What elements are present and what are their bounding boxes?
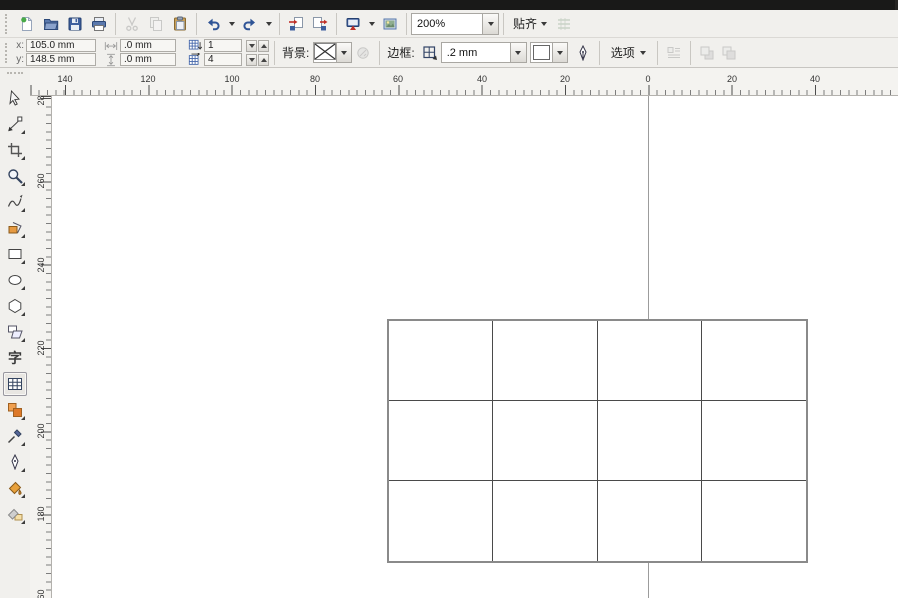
- toolbar-separator: [336, 13, 337, 35]
- toolbox-items: 字: [3, 86, 27, 528]
- no-fill-swatch: [314, 43, 336, 60]
- save-button[interactable]: [63, 12, 87, 36]
- print-icon: [91, 16, 107, 32]
- import-button[interactable]: [284, 12, 308, 36]
- cut-icon: [124, 16, 140, 32]
- welcome-screen-button[interactable]: [378, 12, 402, 36]
- rectangle-tool[interactable]: [3, 242, 27, 266]
- table-cell[interactable]: [389, 321, 493, 401]
- vruler-number: 260: [36, 171, 46, 191]
- text-tool-glyph: 字: [8, 351, 22, 365]
- smart-fill-tool[interactable]: [3, 216, 27, 240]
- table-cell[interactable]: [389, 481, 493, 561]
- border-width-field[interactable]: [442, 43, 510, 62]
- ellipse-tool[interactable]: [3, 268, 27, 292]
- shape-tool[interactable]: [3, 112, 27, 136]
- toolbar-separator: [196, 13, 197, 35]
- x-position-field[interactable]: [26, 39, 96, 52]
- columns-spin-down[interactable]: [246, 54, 257, 66]
- table-tool-icon: [7, 376, 23, 392]
- table-cell[interactable]: [493, 401, 597, 481]
- export-icon: [312, 16, 328, 32]
- y-position-label: y:: [15, 54, 24, 65]
- snap-settings-button[interactable]: [552, 12, 576, 36]
- fill-tool[interactable]: [3, 476, 27, 500]
- toolbar-separator: [279, 13, 280, 35]
- hruler-number: 20: [727, 74, 737, 84]
- export-button[interactable]: [308, 12, 332, 36]
- toolbox: 字: [0, 68, 30, 598]
- pick-tool[interactable]: [3, 86, 27, 110]
- import-icon: [288, 16, 304, 32]
- vruler-number: 200: [36, 421, 46, 441]
- flyout-indicator: [21, 260, 25, 264]
- drawing-canvas[interactable]: [52, 96, 898, 598]
- drawn-table[interactable]: [387, 319, 808, 563]
- table-columns-icon: [188, 53, 202, 67]
- horizontal-ruler-major-ticks: [30, 85, 898, 95]
- paste-icon: [172, 16, 188, 32]
- flyout-indicator: [21, 156, 25, 160]
- print-button[interactable]: [87, 12, 111, 36]
- vruler-number: 160: [36, 587, 46, 598]
- pick-tool-icon: [7, 90, 23, 106]
- text-tool[interactable]: 字: [3, 346, 27, 370]
- flyout-indicator: [21, 286, 25, 290]
- separator: [690, 41, 691, 65]
- vertical-ruler[interactable]: 280260240220200180160: [30, 96, 52, 598]
- border-color-swatch: [533, 45, 550, 60]
- to-back-button[interactable]: [718, 42, 740, 64]
- hruler-number: 40: [810, 74, 820, 84]
- width-icon: [104, 39, 118, 53]
- flyout-indicator: [21, 416, 25, 420]
- flyout-indicator: [21, 468, 25, 472]
- open-folder-icon: [43, 16, 59, 32]
- edit-fill-button[interactable]: [352, 42, 374, 64]
- border-select-icon: [422, 45, 438, 61]
- vruler-number: 220: [36, 338, 46, 358]
- rows-spin-down[interactable]: [246, 40, 257, 52]
- to-front-button[interactable]: [696, 42, 718, 64]
- options-dropdown[interactable]: 选项: [605, 42, 652, 64]
- table-cell[interactable]: [598, 481, 702, 561]
- object-size-group: [104, 39, 176, 66]
- border-label: 边框:: [387, 44, 414, 61]
- hruler-number: 140: [57, 74, 72, 84]
- wrap-text-button[interactable]: [663, 42, 685, 64]
- table-cell[interactable]: [598, 321, 702, 401]
- snap-settings-icon: [556, 16, 572, 32]
- polygon-tool[interactable]: [3, 294, 27, 318]
- x-position-label: x:: [15, 40, 24, 51]
- flyout-indicator: [21, 234, 25, 238]
- table-rows-icon: [188, 39, 202, 53]
- zoom-level-combo[interactable]: [411, 13, 499, 35]
- undo-button-caret[interactable]: [225, 13, 238, 35]
- zoom-tool[interactable]: [3, 164, 27, 188]
- edit-fill-icon: [355, 45, 371, 61]
- cut-button[interactable]: [120, 12, 144, 36]
- hruler-number: 40: [477, 74, 487, 84]
- flyout-indicator: [21, 312, 25, 316]
- options-label: 选项: [611, 44, 635, 61]
- flyout-indicator: [21, 494, 25, 498]
- table-cell[interactable]: [702, 321, 806, 401]
- snap-to-label: 贴齐: [513, 15, 537, 32]
- blend-tool[interactable]: [3, 398, 27, 422]
- outline-pen-tool[interactable]: [3, 450, 27, 474]
- open-button[interactable]: [39, 12, 63, 36]
- zoom-level-field[interactable]: [412, 14, 482, 34]
- window-title-strip: [0, 0, 898, 10]
- flyout-indicator: [21, 208, 25, 212]
- zoom-level-dropdown[interactable]: [482, 14, 498, 34]
- outline-pen-dialog-button[interactable]: [572, 42, 594, 64]
- property-bar: x: y:: [0, 38, 898, 68]
- snap-to-dropdown[interactable]: 贴齐: [508, 13, 552, 35]
- interactive-fill-tool[interactable]: [3, 502, 27, 526]
- object-position-group: x: y:: [15, 39, 96, 66]
- hruler-number: 0: [645, 74, 650, 84]
- outline-pen-icon: [575, 45, 591, 61]
- separator: [274, 41, 275, 65]
- freehand-tool[interactable]: [3, 190, 27, 214]
- undo-button[interactable]: [201, 12, 225, 36]
- height-icon: [104, 53, 118, 67]
- vruler-number: 180: [36, 504, 46, 524]
- border-width-combo[interactable]: [441, 42, 527, 63]
- table-rows-columns-group: [188, 39, 269, 66]
- separator: [379, 41, 380, 65]
- eyedropper-tool[interactable]: [3, 424, 27, 448]
- new-doc-icon: [19, 16, 35, 32]
- to-back-icon: [721, 45, 737, 61]
- welcome-icon: [382, 16, 398, 32]
- basic-shapes-tool[interactable]: [3, 320, 27, 344]
- new-document-button[interactable]: [15, 12, 39, 36]
- redo-button[interactable]: [238, 12, 262, 36]
- horizontal-ruler[interactable]: 1401201008060402002040: [30, 68, 898, 96]
- toolbar-separator: [115, 13, 116, 35]
- redo-button-caret[interactable]: [262, 13, 275, 35]
- wrap-text-icon: [666, 45, 682, 61]
- redo-icon: [242, 16, 258, 32]
- application-launcher-button[interactable]: [341, 12, 365, 36]
- table-cell[interactable]: [598, 401, 702, 481]
- app-launcher-icon: [345, 16, 361, 32]
- copy-button[interactable]: [144, 12, 168, 36]
- rows-spin-up[interactable]: [258, 40, 269, 52]
- toolbar-items: 贴齐: [15, 12, 576, 36]
- table-rows-field[interactable]: [204, 39, 242, 52]
- y-position-field[interactable]: [26, 53, 96, 66]
- vruler-number: 280: [36, 96, 46, 108]
- hruler-number: 120: [140, 74, 155, 84]
- toolbar-drag-handle[interactable]: [5, 14, 10, 34]
- columns-spin-up[interactable]: [258, 54, 269, 66]
- separator: [599, 41, 600, 65]
- hruler-number: 100: [224, 74, 239, 84]
- vruler-number: 240: [36, 255, 46, 275]
- flyout-indicator: [21, 130, 25, 134]
- border-width-dropdown[interactable]: [510, 43, 526, 62]
- table-cell[interactable]: [702, 401, 806, 481]
- save-icon: [67, 16, 83, 32]
- standard-toolbar: 贴齐: [0, 10, 898, 38]
- border-sides-button[interactable]: [419, 42, 441, 64]
- toolbar-separator: [406, 13, 407, 35]
- table-tool[interactable]: [3, 372, 27, 396]
- crop-tool[interactable]: [3, 138, 27, 162]
- table-cell[interactable]: [493, 481, 597, 561]
- property-bar-drag-handle[interactable]: [5, 43, 10, 63]
- object-height-field[interactable]: [120, 53, 176, 66]
- background-fill-dropdown[interactable]: [336, 43, 351, 62]
- border-color-dropdown[interactable]: [552, 43, 567, 62]
- toolbar-separator: [503, 13, 504, 35]
- background-fill-picker[interactable]: [313, 42, 352, 63]
- table-cell[interactable]: [389, 401, 493, 481]
- table-cell[interactable]: [493, 321, 597, 401]
- to-front-icon: [699, 45, 715, 61]
- paste-button[interactable]: [168, 12, 192, 36]
- flyout-indicator: [21, 182, 25, 186]
- flyout-indicator: [21, 442, 25, 446]
- application-launcher-button-caret[interactable]: [365, 13, 378, 35]
- undo-icon: [205, 16, 221, 32]
- flyout-indicator: [21, 520, 25, 524]
- object-width-field[interactable]: [120, 39, 176, 52]
- background-label: 背景:: [282, 44, 309, 61]
- separator: [657, 41, 658, 65]
- copy-icon: [148, 16, 164, 32]
- flyout-indicator: [21, 338, 25, 342]
- hruler-number: 80: [310, 74, 320, 84]
- hruler-number: 20: [560, 74, 570, 84]
- table-columns-field[interactable]: [204, 53, 242, 66]
- hruler-number: 60: [393, 74, 403, 84]
- border-color-picker[interactable]: [530, 42, 568, 63]
- table-cell[interactable]: [702, 481, 806, 561]
- toolbox-drag-handle[interactable]: [7, 72, 23, 78]
